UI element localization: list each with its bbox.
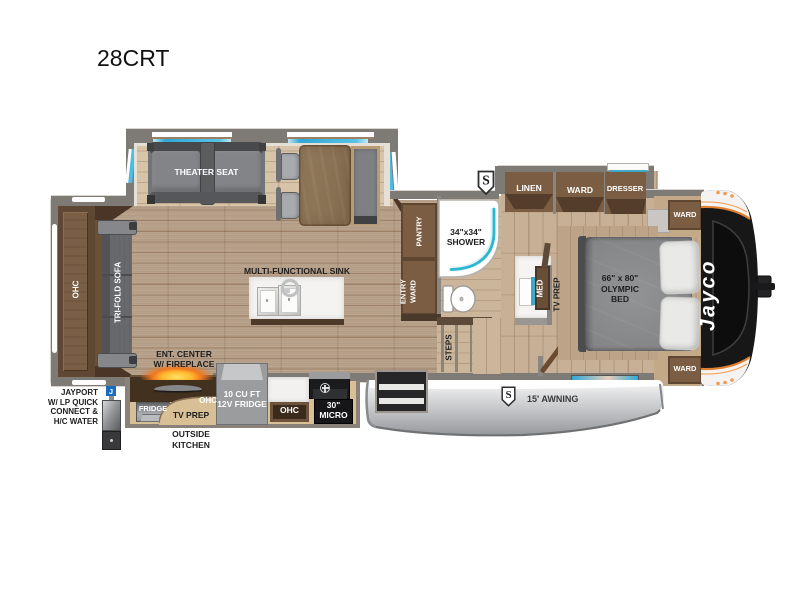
svg-text:S: S xyxy=(482,173,490,188)
svg-text:Jayco: Jayco xyxy=(698,259,720,331)
svg-text:S: S xyxy=(505,389,511,401)
